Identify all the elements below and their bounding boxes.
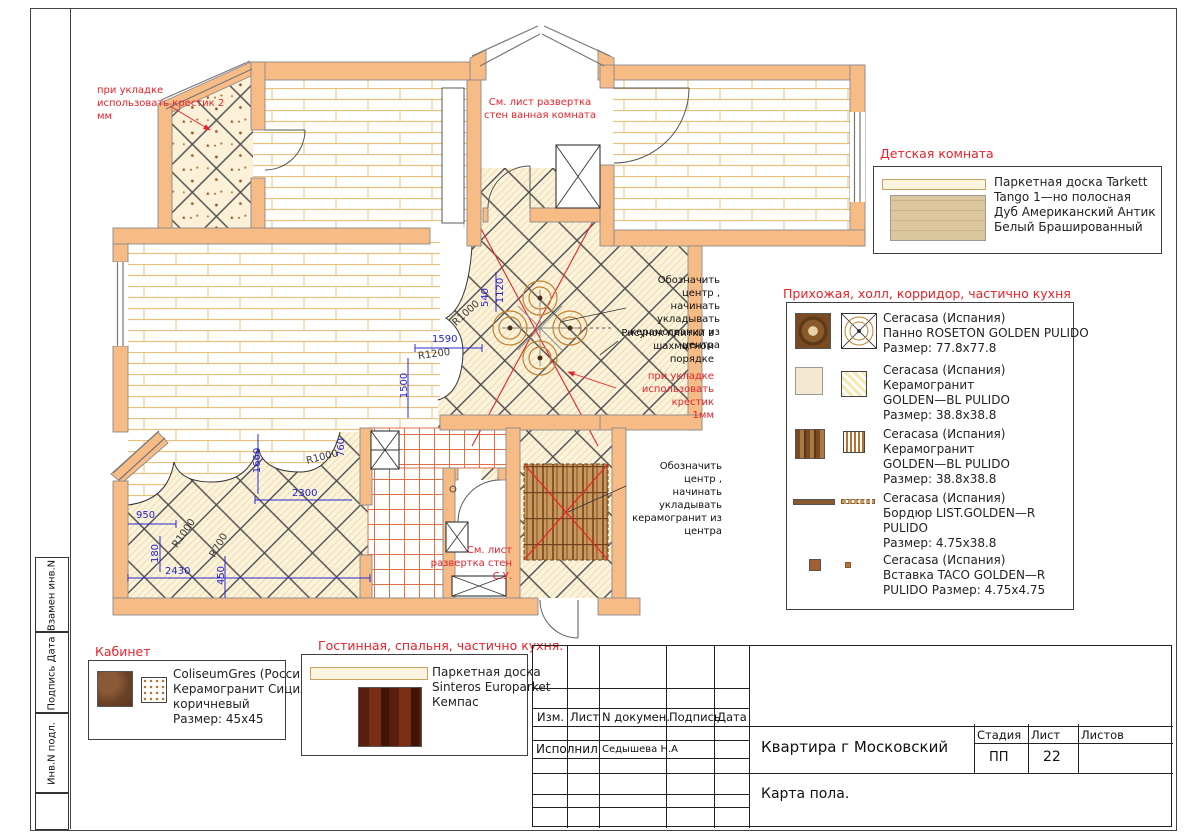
taco-schematic-swatch [845,562,851,568]
entry-rug [524,464,608,560]
note-wc: См. лист развертка стен С.У. [430,544,512,583]
note-checker-pattern: Рисунок плитки в шахматном порядке [620,327,714,366]
stripe-schematic-swatch [843,431,865,453]
wood-photo-swatch [890,195,986,241]
speckle-schematic-swatch [141,677,167,703]
legend-line: Ceracasa (Испания) [883,363,1010,378]
tb-stage-value: ПП [989,750,1009,765]
side-strip-label: Взамен инв.N [47,556,58,636]
legend-living-box: Паркетная доска Sinteros Europarket Кемп… [301,654,528,756]
legend-line: PULIDO Размер: 4.75x4.75 [883,583,1045,598]
dim-label: 540 [480,288,491,307]
legend-line: Размер: 77.8x77.8 [883,341,1089,356]
tb-project: Квартира г Московский [761,738,948,756]
tb-executor-label: Исполнил [536,742,598,756]
tb-sheet-value: 22 [1043,749,1061,765]
legend-line: Вставка TACO GOLDEN—R [883,568,1045,583]
tb-col-list: Лист [570,710,599,724]
legend-line: Паркетная доска Tarkett [994,175,1156,190]
legend-line: Размер: 38.8x38.8 [883,408,1010,423]
legend-line: Керамогранит [883,442,1010,457]
tb-sheet-label: Лист [1031,728,1060,742]
wood-photo-swatch [358,687,422,747]
roseton-schematic-swatch [841,313,877,349]
legend-line: Керамогранит [883,378,1010,393]
dim-label: 450 [216,566,227,585]
dim-label: 2300 [292,488,317,499]
legend-cabinet-box: ColiseumGres (Россия) Керамогранит Сицил… [88,660,286,740]
legend-hall-title: Прихожая, холл, корридор, частично кухня [783,286,1071,301]
tb-col-izm: Изм. [537,710,564,724]
legend-line: Tango 1—но полосная [994,190,1156,205]
tb-col-ndoc: N докумен. [602,710,670,724]
tb-stage-label: Стадия [977,728,1021,742]
side-strip-label: Инв.N подл. [47,714,58,794]
tb-executor-name: Седышева Н.А [602,744,678,755]
plank-bar-swatch [310,667,428,680]
tb-sheets-label: Листов [1081,728,1124,742]
legend-line: Белый Брашированный [994,220,1156,235]
note-center-2: Обозначить центр , начинать укладывать к… [628,460,722,538]
legend-line: Дуб Американский Антик [994,205,1156,220]
taco-photo-swatch [809,559,821,571]
legend-line: Ceracasa (Испания) [883,427,1010,442]
stripe-photo-swatch [795,429,825,459]
side-strip-label: Подпись Дата [47,634,58,714]
note-crosses-1mm: при укладке использовать крестик 1мм [618,370,714,422]
legend-line: Размер: 4.75x38.8 [883,536,1035,551]
legend-living-title: Гостинная, спальня, частично кухня. [318,638,563,653]
marble-photo-swatch [97,671,133,707]
legend-line: Ceracasa (Испания) [883,553,1045,568]
tile-photo-swatch [795,367,823,395]
tb-doc-title: Карта пола. [761,786,849,802]
legend-line: GOLDEN—BL PULIDO [883,393,1010,408]
legend-line: Размер: 38.8x38.8 [883,472,1010,487]
plank-bar-swatch [882,179,986,190]
legend-line: Панно ROSETON GOLDEN PULIDO [883,326,1089,341]
border-photo-swatch [793,499,835,505]
legend-kids-title: Детская комната [880,146,994,161]
dim-label: 760 [336,438,347,457]
roseton-photo-swatch [795,313,831,349]
legend-line: PULIDO [883,521,1035,536]
tile-schematic-swatch [841,371,867,397]
dim-label: 180 [150,544,161,563]
legend-line: Ceracasa (Испания) [883,491,1035,506]
note-bathroom: См. лист развертка стен ванная комната [450,96,630,122]
dim-label: 2430 [165,566,190,577]
dim-label: 950 [136,510,155,521]
tb-col-data: Дата [717,710,747,724]
legend-line: GOLDEN—BL PULIDO [883,457,1010,472]
tb-col-podpis: Подпись [669,710,721,724]
legend-line: Бордюр LIST.GOLDEN—R [883,506,1035,521]
note-crosses-2mm: при укладке использовать крестик 2 мм [97,84,232,123]
dim-label: 1120 [495,278,506,303]
legend-line: Ceracasa (Испания) [883,311,1089,326]
title-block: Изм. Лист N докумен. Подпись Дата Исполн… [532,645,1172,827]
dim-label: 1500 [399,373,410,398]
legend-hall-box: Ceracasa (Испания) Панно ROSETON GOLDEN … [786,302,1074,610]
dim-label: 1660 [252,448,263,473]
legend-cabinet-title: Кабинет [95,644,151,659]
drawing-sheet: при укладке использовать крестик 2 мм См… [0,0,1184,837]
legend-kids-box: Паркетная доска Tarkett Tango 1—но полос… [873,166,1162,254]
border-schematic-swatch [841,499,875,504]
dim-label: 1590 [432,334,457,345]
